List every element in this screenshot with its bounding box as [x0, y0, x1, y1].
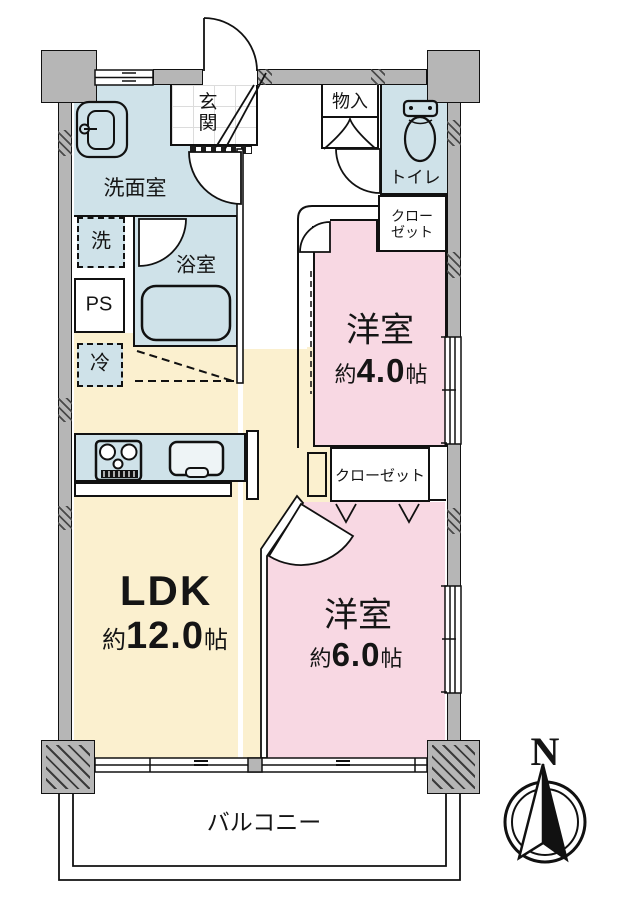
wall-break-mark: [447, 508, 461, 534]
wall-top-right: [257, 69, 427, 85]
floorplan: 洗面室 浴室 トイレ 玄関 物入 クロー ゼット クローゼット 洋室 約4.0帖…: [0, 0, 626, 900]
bedroom-large-area: 約6.0帖: [310, 636, 403, 674]
ldk-floor: [74, 333, 238, 758]
wall-break-mark: [58, 398, 72, 422]
pillar-hatch: [46, 745, 90, 789]
bedroom-small-doorway: [330, 219, 378, 252]
storage-shelf-line: [323, 116, 377, 118]
kitchen-counter-front: [74, 482, 232, 497]
wall-break-mark: [258, 69, 272, 85]
wall-break-mark: [371, 69, 385, 85]
wall-break-mark: [447, 120, 461, 146]
entrance-label: 玄関: [198, 93, 219, 135]
pillar-bottom-left: [41, 740, 95, 794]
pillar-hatch: [432, 745, 475, 789]
pillar-top-right: [427, 50, 480, 103]
wall-break-mark: [58, 506, 72, 530]
wall-right: [447, 100, 461, 744]
pillar-top-left: [41, 50, 97, 103]
ldk-area: 約12.0帖: [102, 615, 228, 659]
kitchen-counter-end: [246, 430, 259, 500]
wall-top-left: [153, 69, 203, 85]
storage-label: 物入: [332, 92, 368, 113]
entrance-step-mat: [190, 146, 252, 154]
fridge-label: 冷: [90, 353, 110, 376]
balcony-label: バルコニー: [207, 809, 322, 835]
washroom-label: 洗面室: [104, 177, 167, 201]
wall-left: [58, 100, 72, 744]
bedroom-large-name: 洋室: [324, 596, 392, 635]
compass-north-label: N: [531, 729, 560, 775]
ldk-name: LDK: [120, 567, 212, 615]
toilet-label: トイレ: [390, 168, 441, 188]
pipe-space-label: PS: [86, 294, 113, 317]
corridor-floor: [243, 148, 307, 349]
wall-break-mark: [447, 252, 461, 278]
closet-upper-label: クロー ゼット: [391, 208, 433, 240]
bedroom-small-name: 洋室: [346, 311, 414, 350]
ldk-post: [307, 452, 327, 497]
bathroom: [133, 215, 238, 347]
bath-label: 浴室: [176, 255, 216, 278]
closet-lower-label: クローゼット: [335, 467, 425, 484]
balcony-outline: [59, 794, 460, 880]
compass-icon: [505, 764, 585, 862]
kitchen-counter: [74, 433, 246, 482]
washer-label: 洗: [91, 231, 111, 254]
bedroom-small-area: 約4.0帖: [335, 352, 428, 390]
pillar-bottom-right: [427, 740, 480, 794]
wall-break-mark: [58, 130, 72, 156]
